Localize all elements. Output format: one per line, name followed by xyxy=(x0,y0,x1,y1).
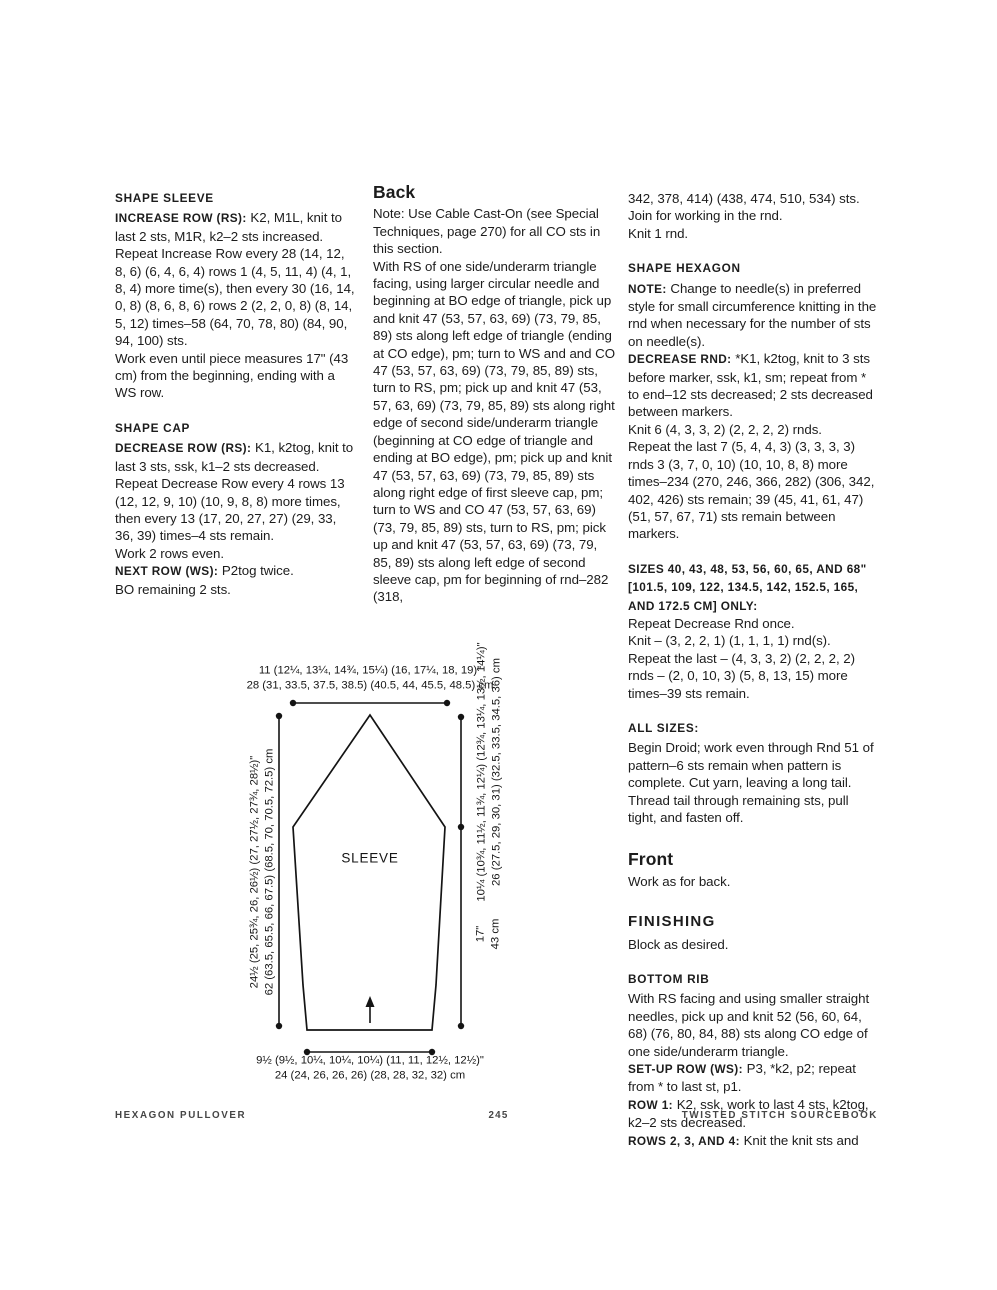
footer-book-title: TWISTED STITCH SOURCEBOOK xyxy=(682,1110,878,1121)
body-text: Back xyxy=(373,182,415,202)
body-text: Knit – (3, 2, 2, 1) (1, 1, 1, 1) rnd(s). xyxy=(628,633,831,648)
paragraph: DECREASE ROW (RS): K1, k2tog, knit to la… xyxy=(115,439,358,475)
paragraph: Begin Droid; work even through Rnd 51 of… xyxy=(628,739,878,826)
section-heading: SHAPE SLEEVE xyxy=(115,190,358,207)
body-text: SHAPE CAP xyxy=(115,421,190,435)
paragraph: Repeat Decrease Rnd once. xyxy=(628,615,878,632)
column-left: SHAPE SLEEVEINCREASE ROW (RS): K2, M1L, … xyxy=(115,190,358,598)
instruction-label: NOTE: xyxy=(628,282,670,296)
dimension-inches: 24½ (25, 25¾, 26, 26½) (27, 27½, 27¾, 28… xyxy=(248,749,263,996)
section-heading: SHAPE CAP xyxy=(115,420,358,437)
paragraph: SET-UP ROW (WS): P3, *k2, p2; repeat fro… xyxy=(628,1060,878,1096)
length-dimension: 24½ (25, 25¾, 26, 26½) (27, 27½, 27¾, 28… xyxy=(248,749,277,996)
section-heading: ALL SIZES: xyxy=(628,720,878,737)
body-text: Join for working in the rnd. xyxy=(628,208,783,223)
body-text: Repeat Decrease Row every 4 rows 13 (12,… xyxy=(115,476,345,543)
paragraph: INCREASE ROW (RS): K2, M1L, knit to last… xyxy=(115,209,358,245)
paragraph: Work as for back. xyxy=(628,873,878,890)
paragraph: Repeat Increase Row every 28 (14, 12, 8,… xyxy=(115,245,358,349)
column-right: 342, 378, 414) (438, 474, 510, 534) sts.… xyxy=(628,190,878,1150)
body-text: With RS of one side/underarm triangle fa… xyxy=(373,259,615,605)
paragraph: Note: Use Cable Cast-On (see Special Tec… xyxy=(373,205,619,257)
paragraph: Repeat Decrease Row every 4 rows 13 (12,… xyxy=(115,475,358,545)
section-heading: FINISHING xyxy=(628,913,878,930)
paragraph: Repeat the last 7 (5, 4, 4, 3) (3, 3, 3,… xyxy=(628,438,878,542)
book-page: { "columns": { "left": [ {"type":"h3","t… xyxy=(0,0,997,1290)
dimension-cm: 26 (27.5, 29, 30, 31) (32.5, 33.5, 34.5,… xyxy=(489,642,504,901)
body-text: With RS facing and using smaller straigh… xyxy=(628,991,869,1058)
body-text: FINISHING xyxy=(628,913,716,930)
paragraph: BO remaining 2 sts. xyxy=(115,581,358,598)
sleeve-schematic: SLEEVE 11 (12¼, 13¼, 14¾, 15¼) (16, 17¼,… xyxy=(220,655,530,1100)
column-middle: BackNote: Use Cable Cast-On (see Special… xyxy=(373,184,619,606)
body-text: SHAPE HEXAGON xyxy=(628,261,741,275)
instruction-label: SET-UP ROW (WS): xyxy=(628,1062,747,1076)
dimension-cm: 28 (31, 33.5, 37.5, 38.5) (40.5, 44, 45.… xyxy=(247,678,494,693)
body-text: Knit 6 (4, 3, 3, 2) (2, 2, 2, 2) rnds. xyxy=(628,422,822,437)
top-width-dimension: 11 (12¼, 13¼, 14¾, 15¼) (16, 17¼, 18, 19… xyxy=(247,664,494,693)
dimension-cm: 24 (24, 26, 26, 26) (28, 28, 32, 32) cm xyxy=(256,1068,484,1083)
paragraph: NOTE: Change to needle(s) in preferred s… xyxy=(628,280,878,351)
dimension-inches: 10¼ (10¾, 11½, 11¾, 12¼) (12¾, 13¼, 13½,… xyxy=(475,642,490,901)
body-text: Work even until piece measures 17" (43 c… xyxy=(115,351,348,401)
body-text: Repeat Increase Row every 28 (14, 12, 8,… xyxy=(115,246,355,348)
instruction-label: ROWS 2, 3, AND 4: xyxy=(628,1134,744,1148)
instruction-label: DECREASE RND: xyxy=(628,352,735,366)
section-heading: SHAPE HEXAGON xyxy=(628,260,878,277)
body-text: Repeat the last – (4, 3, 3, 2) (2, 2, 2,… xyxy=(628,651,855,701)
body-text: Work as for back. xyxy=(628,874,730,889)
body-text: 342, 378, 414) (438, 474, 510, 534) sts. xyxy=(628,191,860,206)
body-text: Knit 1 rnd. xyxy=(628,226,688,241)
dimension-cm: 62 (63.5, 65.5, 66, 67.5) (68.5, 70, 70.… xyxy=(262,749,277,996)
body-text: Block as desired. xyxy=(628,937,728,952)
sleeve-piece-label: SLEEVE xyxy=(341,851,398,866)
section-heading: Back xyxy=(373,184,619,201)
body-text: Repeat Decrease Rnd once. xyxy=(628,616,795,631)
dimension-inches: 9½ (9½, 10¼, 10¼, 10¼) (11, 11, 12½, 12½… xyxy=(256,1054,484,1069)
body-text: Note: Use Cable Cast-On (see Special Tec… xyxy=(373,206,600,256)
body-text: SHAPE SLEEVE xyxy=(115,191,214,205)
paragraph: Block as desired. xyxy=(628,936,878,953)
instruction-label: INCREASE ROW (RS): xyxy=(115,211,250,225)
dimension-inches: 17" xyxy=(474,919,489,950)
paragraph: Knit – (3, 2, 2, 1) (1, 1, 1, 1) rnd(s). xyxy=(628,632,878,649)
instruction-label: NEXT ROW (WS): xyxy=(115,564,222,578)
sleeve-outline xyxy=(293,715,445,1030)
body-text: Begin Droid; work even through Rnd 51 of… xyxy=(628,740,874,825)
body-text: Repeat the last 7 (5, 4, 4, 3) (3, 3, 3,… xyxy=(628,439,874,541)
body-text: BOTTOM RIB xyxy=(628,972,710,986)
body-text: Front xyxy=(628,849,673,869)
page-footer: HEXAGON PULLOVER 245 TWISTED STITCH SOUR… xyxy=(0,1110,997,1126)
paragraph: With RS of one side/underarm triangle fa… xyxy=(373,258,619,606)
paragraph: With RS facing and using smaller straigh… xyxy=(628,990,878,1060)
body-text: BO remaining 2 sts. xyxy=(115,582,231,597)
section-heading: Front xyxy=(628,851,878,868)
cuff-width-dimension: 9½ (9½, 10¼, 10¼, 10¼) (11, 11, 12½, 12½… xyxy=(256,1054,484,1083)
body-text: Work 2 rows even. xyxy=(115,546,224,561)
paragraph: Repeat the last – (4, 3, 3, 2) (2, 2, 2,… xyxy=(628,650,878,702)
paragraph: Work 2 rows even. xyxy=(115,545,358,562)
body-text: ALL SIZES: xyxy=(628,721,699,735)
body-text: Knit the knit sts and xyxy=(744,1133,859,1148)
paragraph: Knit 6 (4, 3, 3, 2) (2, 2, 2, 2) rnds. xyxy=(628,421,878,438)
paragraph: NEXT ROW (WS): P2tog twice. xyxy=(115,562,358,580)
paragraph: Join for working in the rnd. xyxy=(628,207,878,224)
instruction-label: SIZES 40, 43, 48, 53, 56, 60, 65, AND 68… xyxy=(628,562,867,613)
dimension-inches: 11 (12¼, 13¼, 14¾, 15¼) (16, 17¼, 18, 19… xyxy=(247,664,494,679)
paragraph: DECREASE RND: *K1, k2tog, knit to 3 sts … xyxy=(628,350,878,421)
paragraph: ROWS 2, 3, AND 4: Knit the knit sts and xyxy=(628,1132,878,1150)
paragraph: SIZES 40, 43, 48, 53, 56, 60, 65, AND 68… xyxy=(628,560,878,615)
paragraph: Work even until piece measures 17" (43 c… xyxy=(115,350,358,402)
paragraph: 342, 378, 414) (438, 474, 510, 534) sts. xyxy=(628,190,878,207)
paragraph: Knit 1 rnd. xyxy=(628,225,878,242)
knit-direction-arrow-head xyxy=(366,996,375,1007)
underarm-length-dimension: 17" 43 cm xyxy=(474,919,503,950)
section-heading: BOTTOM RIB xyxy=(628,971,878,988)
dimension-cm: 43 cm xyxy=(488,919,503,950)
cap-height-dimension: 10¼ (10¾, 11½, 11¾, 12¼) (12¾, 13¼, 13½,… xyxy=(475,642,504,901)
instruction-label: DECREASE ROW (RS): xyxy=(115,441,255,455)
body-text: P2tog twice. xyxy=(222,563,294,578)
